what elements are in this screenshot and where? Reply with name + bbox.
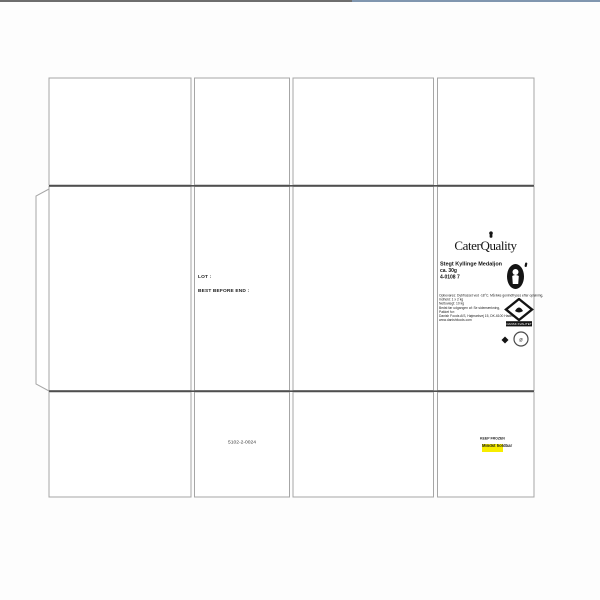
apostrophe-mark	[524, 262, 527, 267]
carton-code: 5102-2-0024	[216, 439, 269, 445]
best-before-label: BEST BEFORE END :	[198, 289, 249, 294]
diamond-badge: DANSK KVALITET	[504, 298, 534, 328]
packaging-artwork-page: LOT : BEST BEFORE END : 5102-2-0024 Cate…	[0, 0, 600, 600]
circle-badge-text: ø	[519, 337, 523, 343]
fine-print-block: Opbevares: Dybfrosset ved -18°C. Må ikke…	[439, 294, 505, 323]
chef-oval-badge	[505, 261, 529, 291]
frozen-sticker: KEEP FROZEN Mindst holdbar	[480, 437, 504, 452]
glue-flap	[36, 189, 49, 391]
top-flap-2	[195, 78, 290, 185]
bottom-flap-3	[293, 392, 434, 497]
top-flap-3	[293, 78, 434, 185]
product-item-no: 4-0108 7	[440, 274, 500, 281]
chef-icon	[487, 231, 495, 239]
top-flap-1	[49, 78, 191, 185]
top-flap-4	[438, 78, 535, 185]
brand-logo-wrap: CaterQuality	[437, 237, 534, 255]
brand-logo: CaterQuality	[454, 238, 516, 254]
bottom-flap-2	[195, 392, 290, 497]
lot-label: LOT :	[198, 275, 211, 280]
chef-silhouette-icon	[513, 269, 519, 275]
body-panel-1	[49, 187, 191, 391]
body-panel-3	[293, 187, 434, 391]
product-block: Stegt Kyllinge Medaljon ca. 30g 4-0108 7	[440, 261, 500, 281]
fine-print-line: www.danishfoods.com	[439, 319, 505, 323]
chef-body-icon	[512, 275, 519, 284]
sticker-line1: KEEP FROZEN	[480, 437, 504, 441]
sticker-highlight: Mindst holdbar	[482, 444, 503, 452]
circle-badge: ø	[511, 329, 531, 349]
badge-banner-text: DANSK KVALITET	[506, 322, 531, 326]
sticker-line2: Mindst holdbar	[482, 444, 506, 448]
diamond-bullet-icon	[501, 336, 509, 344]
bottom-flap-1	[49, 392, 191, 497]
